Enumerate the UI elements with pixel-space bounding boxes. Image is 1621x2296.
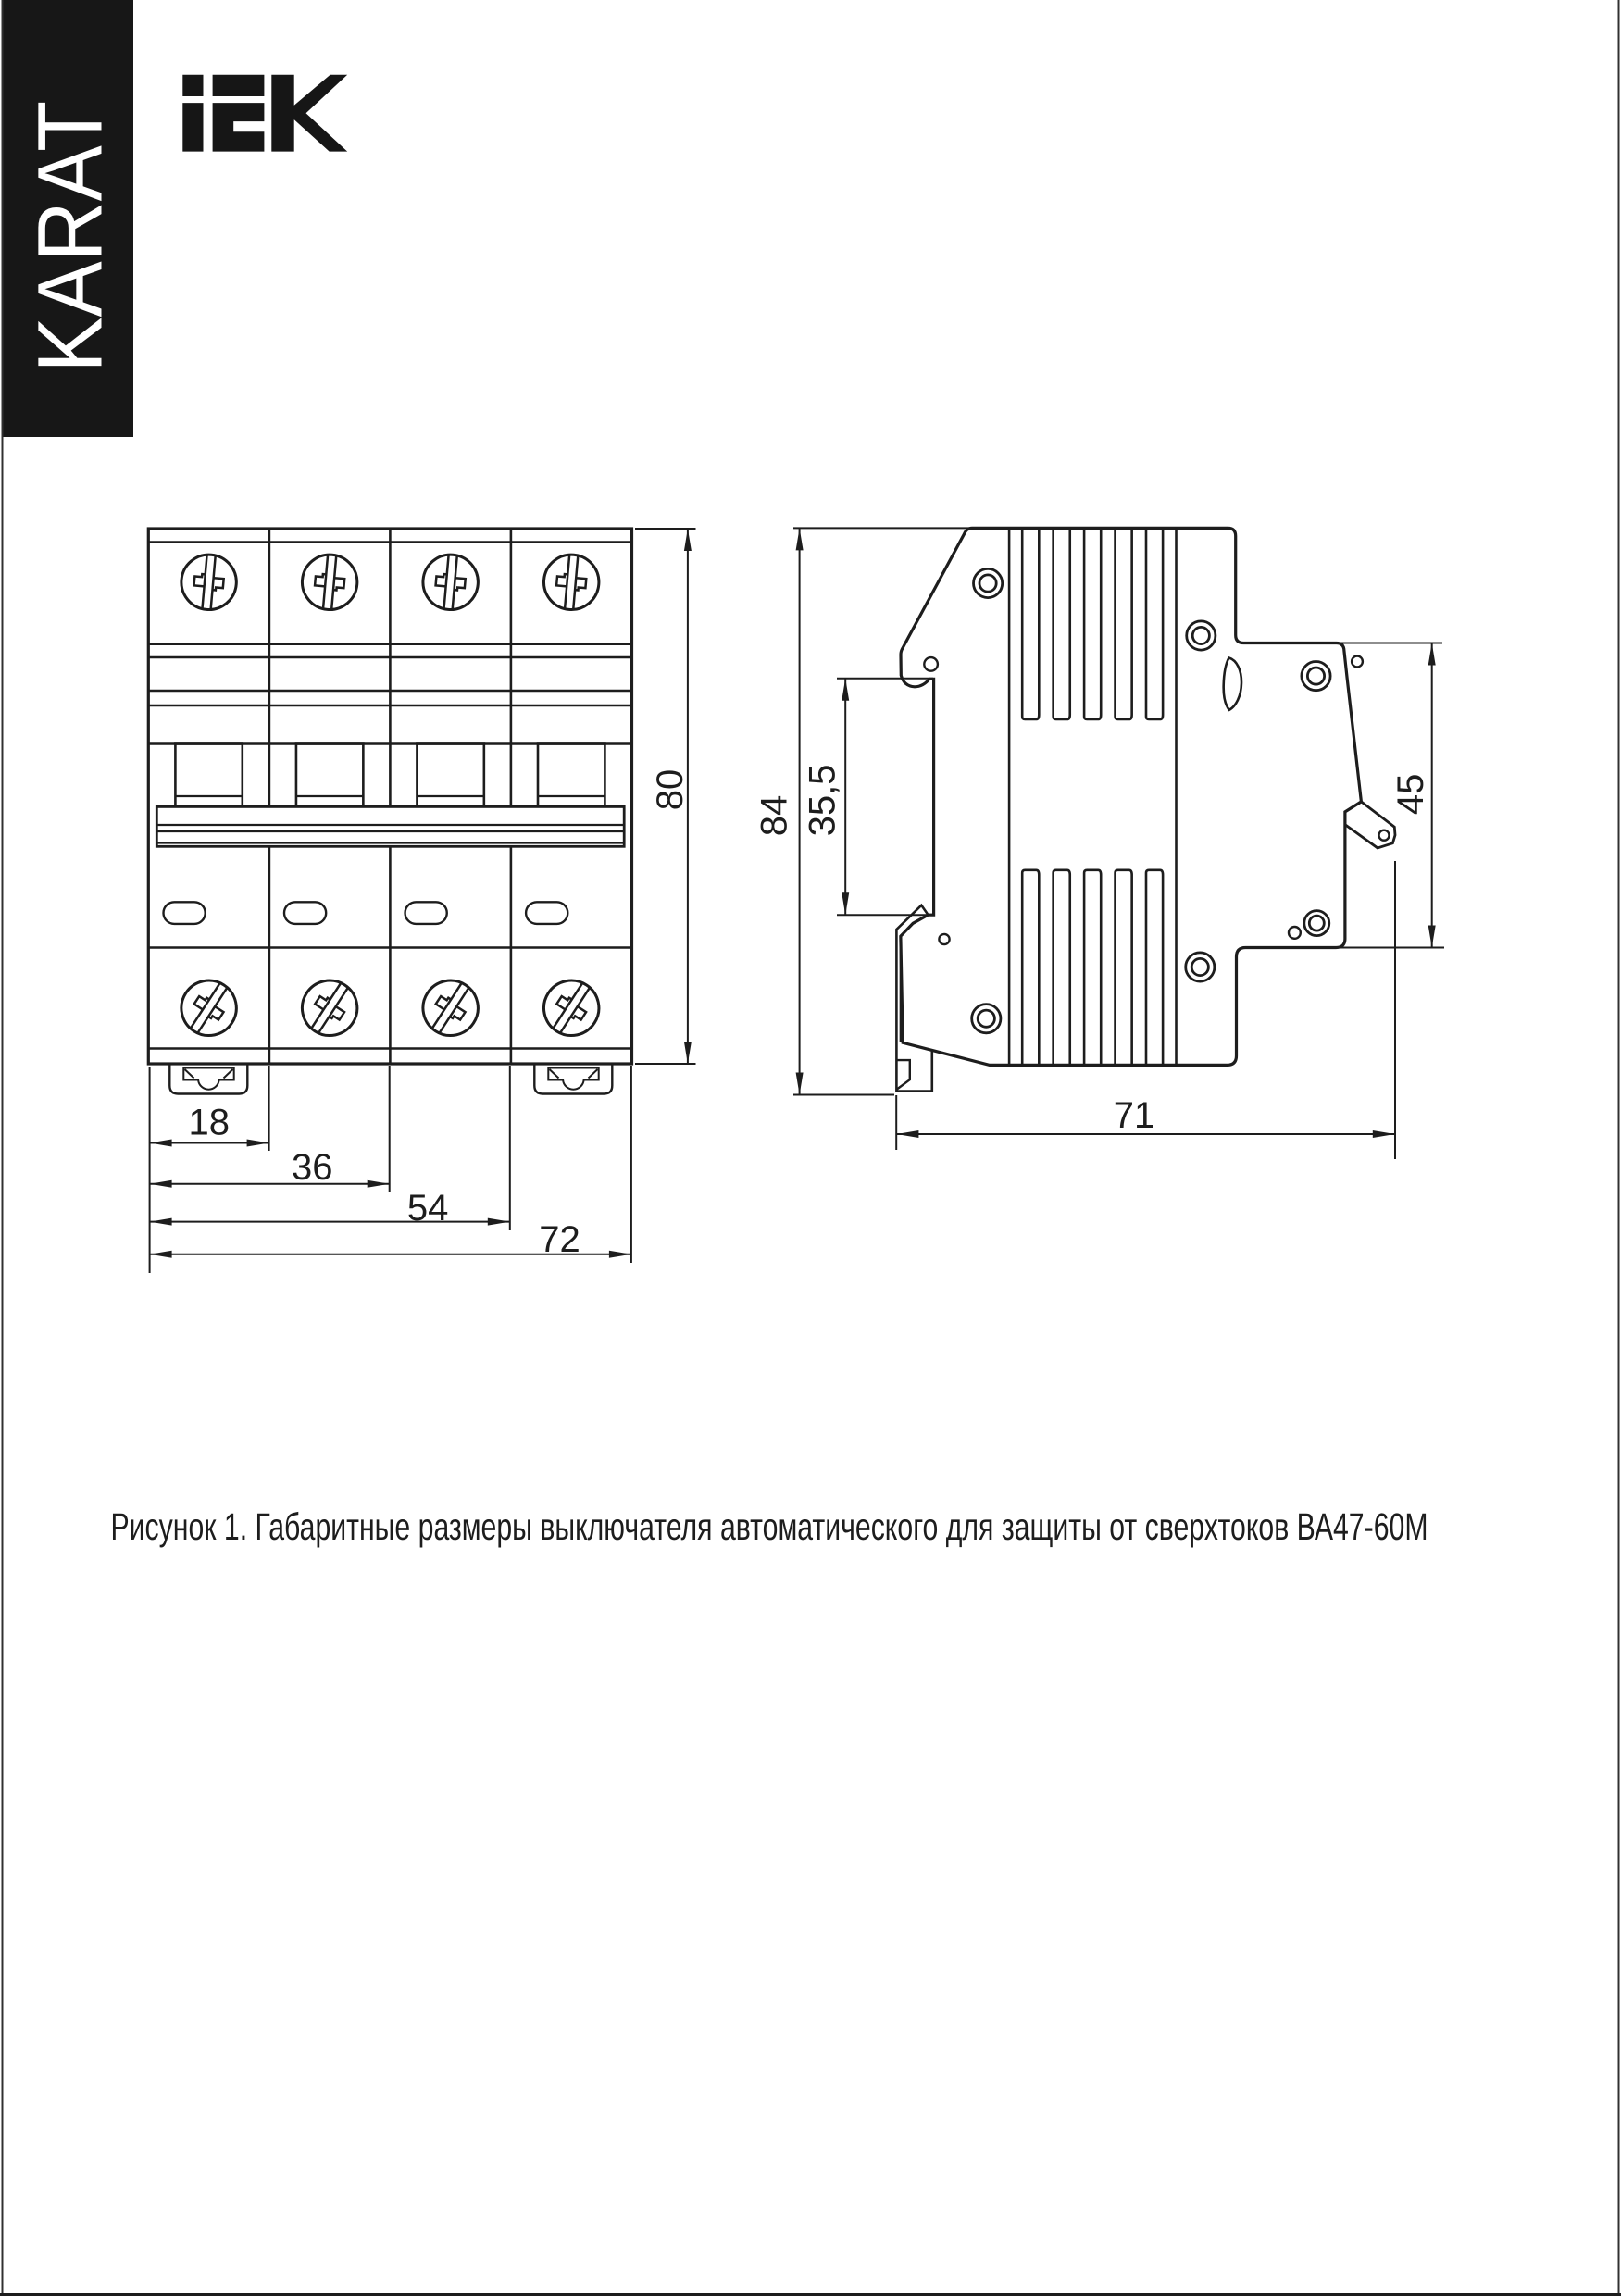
svg-text:80: 80 bbox=[650, 769, 691, 811]
svg-text:Рисунок 1. Габаритные размеры: Рисунок 1. Габаритные размеры выключател… bbox=[111, 1505, 1428, 1548]
svg-text:54: 54 bbox=[407, 1188, 449, 1229]
svg-text:35,5: 35,5 bbox=[803, 765, 843, 837]
svg-text:36: 36 bbox=[292, 1147, 333, 1188]
svg-text:84: 84 bbox=[754, 795, 795, 837]
svg-text:45: 45 bbox=[1390, 774, 1431, 816]
svg-text:72: 72 bbox=[539, 1219, 580, 1260]
svg-text:KARAT: KARAT bbox=[19, 101, 121, 373]
svg-text:18: 18 bbox=[189, 1102, 231, 1142]
svg-text:71: 71 bbox=[1114, 1095, 1155, 1136]
